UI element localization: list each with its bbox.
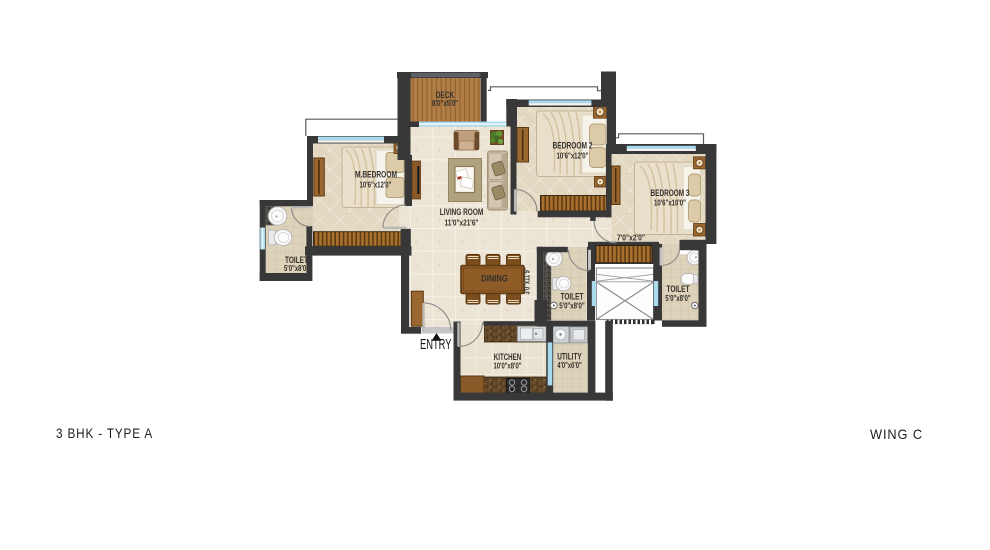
svg-text:ENTRY: ENTRY: [420, 336, 452, 353]
svg-text:10'6"x12'0": 10'6"x12'0": [360, 180, 392, 190]
svg-text:10'0"x8'0": 10'0"x8'0": [494, 361, 522, 371]
svg-text:5'0"x8'0": 5'0"x8'0": [284, 263, 309, 273]
svg-text:BEDROOM 3: BEDROOM 3: [651, 188, 690, 198]
svg-text:5'0"x8'0": 5'0"x8'0": [559, 301, 585, 311]
svg-text:8'0"x5'0": 8'0"x5'0": [432, 98, 458, 108]
svg-text:WING C: WING C: [870, 426, 923, 442]
svg-text:11'0"x21'6": 11'0"x21'6": [445, 218, 479, 228]
svg-text:4'0"x6'0": 4'0"x6'0": [557, 360, 582, 370]
svg-text:7'0"x2'0": 7'0"x2'0": [617, 233, 645, 243]
svg-text:3 BHK - TYPE A: 3 BHK - TYPE A: [56, 425, 153, 441]
svg-text:BEDROOM 2: BEDROOM 2: [553, 141, 593, 151]
svg-text:3'0"x11'9": 3'0"x11'9": [522, 267, 532, 294]
svg-text:10'6"x10'0": 10'6"x10'0": [654, 198, 686, 208]
svg-text:5'0"x8'0": 5'0"x8'0": [665, 293, 691, 303]
svg-text:10'6"x12'0": 10'6"x12'0": [557, 151, 589, 161]
svg-text:M.BEDROOM: M.BEDROOM: [355, 170, 397, 180]
svg-text:DINING: DINING: [481, 274, 508, 284]
svg-text:LIVING ROOM: LIVING ROOM: [440, 207, 484, 217]
